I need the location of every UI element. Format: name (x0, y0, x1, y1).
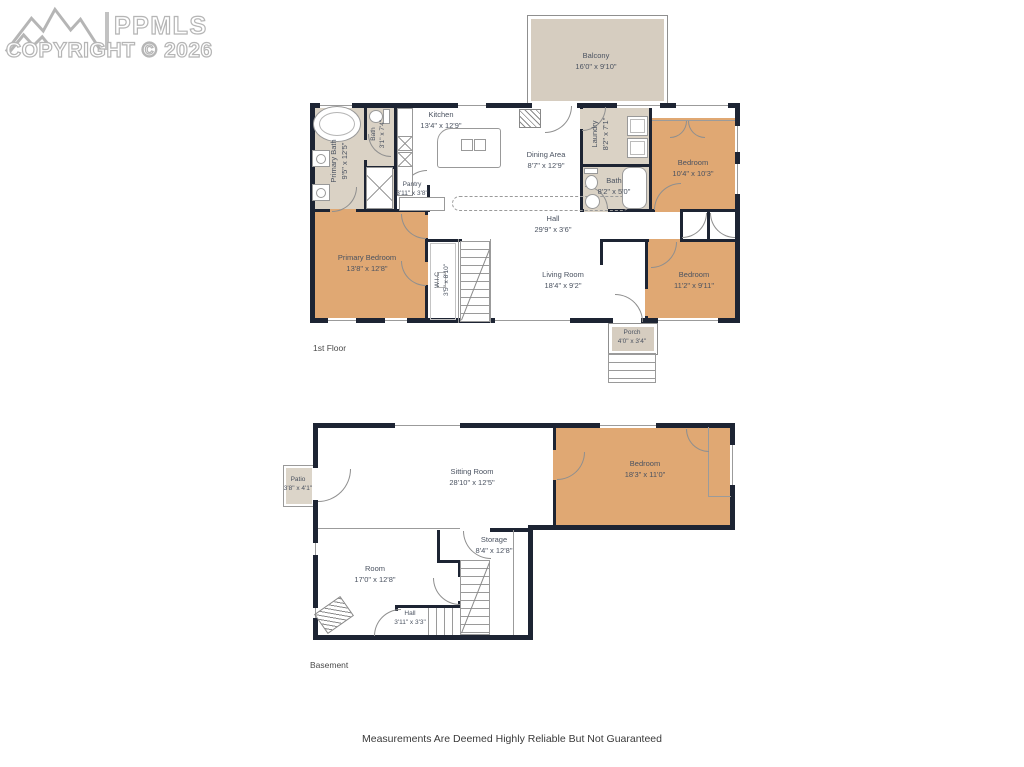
wall (528, 530, 533, 640)
floorplan-page: PPMLS COPYRIGHT © 2026 (0, 0, 1024, 767)
room-label-sitting: Sitting Room28'10" x 12'5" (449, 467, 494, 489)
room-label-room: Room17'0" x 12'8" (354, 564, 395, 586)
basement-plan: Sitting Room28'10" x 12'5" Bedroom18'3" … (0, 0, 1024, 767)
window (730, 445, 735, 485)
room-label-basement-hall: Hall3'11" x 3'3" (394, 610, 426, 628)
room-label-storage: Storage8'4" x 12'8" (476, 535, 513, 557)
wall (490, 528, 530, 532)
patio-door (318, 469, 351, 502)
wall (553, 480, 556, 530)
wall (313, 423, 318, 468)
furnace-hatch (314, 596, 354, 634)
open-divider-line (318, 528, 460, 529)
wall (313, 423, 735, 428)
window (395, 423, 460, 428)
storage-line (513, 530, 514, 635)
basement-title: Basement (310, 660, 348, 670)
wall (528, 525, 735, 530)
wall (437, 530, 440, 562)
disclaimer-text: Measurements Are Deemed Highly Reliable … (0, 733, 1024, 745)
wall (553, 423, 556, 450)
stairs-lower-run (428, 608, 461, 635)
room-label-patio: Patio3'8" x 4'1" (284, 476, 312, 494)
wall (313, 635, 533, 640)
window (313, 543, 318, 555)
window (600, 423, 656, 428)
closet-line (708, 496, 731, 497)
room-door (433, 578, 460, 605)
room-label-basement-bedroom: Bedroom18'3" x 11'0" (625, 459, 666, 481)
